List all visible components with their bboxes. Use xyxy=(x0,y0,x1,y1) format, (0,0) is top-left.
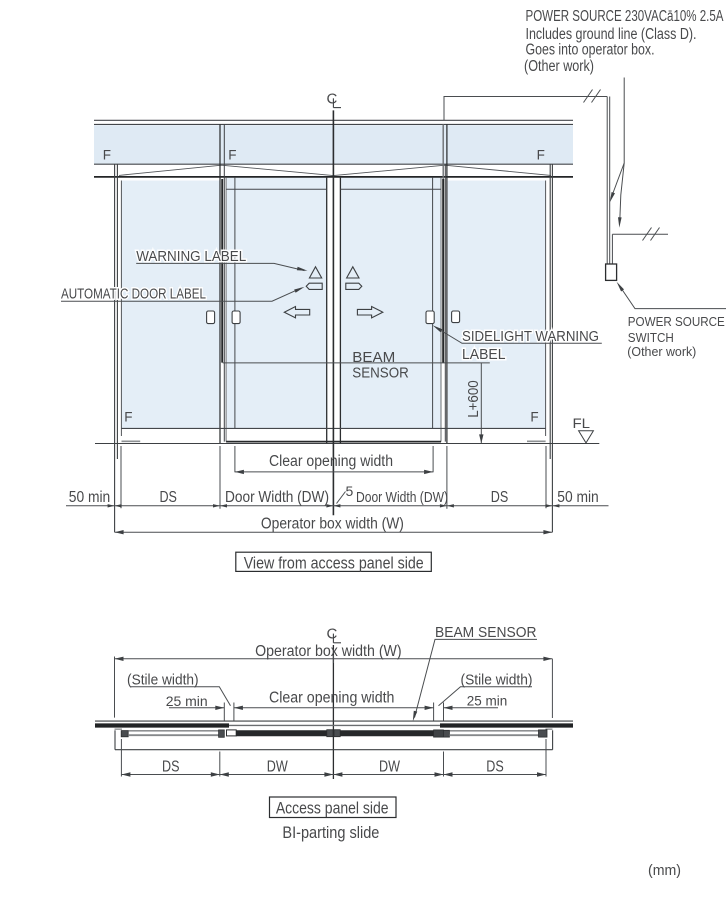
svg-text:Clear opening width: Clear opening width xyxy=(269,689,395,706)
svg-text:DW: DW xyxy=(379,759,400,776)
svg-text:LABEL: LABEL xyxy=(462,347,506,363)
svg-text:DS: DS xyxy=(491,489,509,506)
svg-text:Access panel side: Access panel side xyxy=(276,800,389,818)
svg-text:SENSOR: SENSOR xyxy=(352,366,409,382)
svg-text:F: F xyxy=(228,147,236,162)
svg-text:25 min: 25 min xyxy=(467,693,508,709)
svg-text:F: F xyxy=(124,409,132,424)
svg-text:C: C xyxy=(327,626,338,643)
svg-text:Goes into operator box.: Goes into operator box. xyxy=(526,42,655,59)
svg-text:BEAM SENSOR: BEAM SENSOR xyxy=(435,624,537,641)
svg-text:BI-parting slide: BI-parting slide xyxy=(282,824,379,842)
svg-text:(mm): (mm) xyxy=(648,862,681,879)
svg-text:FL: FL xyxy=(573,415,591,431)
svg-text:Clear opening width: Clear opening width xyxy=(269,453,393,470)
svg-text:F: F xyxy=(537,147,545,162)
svg-text:Door Width (DW): Door Width (DW) xyxy=(225,489,329,506)
svg-text:Operator box width (W): Operator box width (W) xyxy=(261,516,404,533)
svg-text:(Other work): (Other work) xyxy=(627,344,696,359)
svg-text:50 min: 50 min xyxy=(557,489,599,506)
svg-text:BEAM: BEAM xyxy=(352,350,395,366)
svg-text:(Stile width): (Stile width) xyxy=(127,671,199,688)
svg-text:DS: DS xyxy=(159,489,177,506)
svg-text:F: F xyxy=(530,409,538,424)
svg-text:SWITCH: SWITCH xyxy=(628,330,674,345)
svg-text:POWER SOURCE 230VACā10% 2.5A: POWER SOURCE 230VACā10% 2.5A xyxy=(526,8,725,25)
svg-text:5: 5 xyxy=(346,483,354,499)
svg-text:WARNING LABEL: WARNING LABEL xyxy=(136,249,246,265)
svg-text:DW: DW xyxy=(267,759,288,776)
svg-text:POWER SOURCE: POWER SOURCE xyxy=(628,314,725,329)
svg-text:C: C xyxy=(327,91,338,108)
svg-text:Door Width (DW): Door Width (DW) xyxy=(356,490,448,506)
svg-text:(Stile width): (Stile width) xyxy=(461,671,533,688)
svg-text:F: F xyxy=(103,147,111,162)
svg-text:L+600: L+600 xyxy=(465,380,482,418)
svg-text:DS: DS xyxy=(486,759,504,776)
svg-text:View from access panel side: View from access panel side xyxy=(244,554,424,572)
svg-text:(Other work): (Other work) xyxy=(524,58,594,75)
svg-text:DS: DS xyxy=(162,759,180,776)
svg-text:50 min: 50 min xyxy=(69,489,111,506)
svg-text:AUTOMATIC DOOR LABEL: AUTOMATIC DOOR LABEL xyxy=(61,287,206,303)
svg-text:Operator box width (W): Operator box width (W) xyxy=(255,643,402,660)
